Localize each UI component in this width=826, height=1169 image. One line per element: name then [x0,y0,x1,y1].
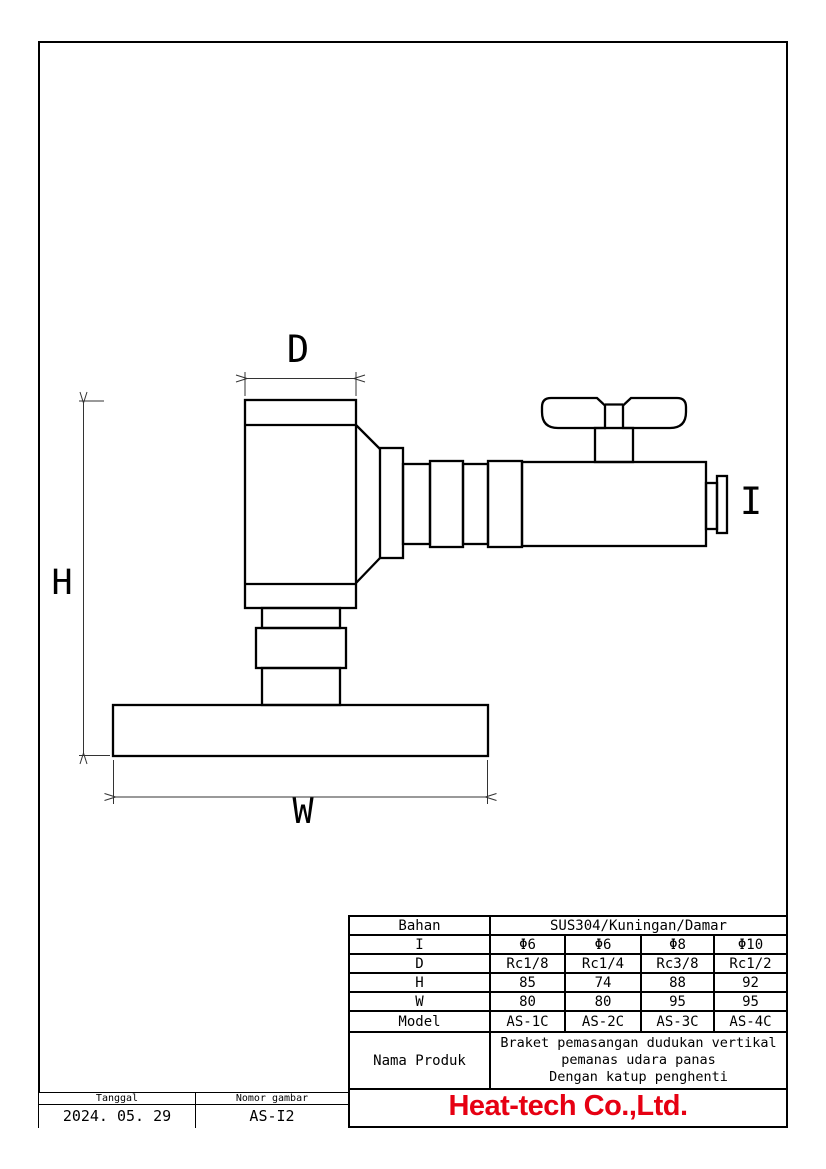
base-plate [113,705,488,756]
row-w-v1: 80 [564,993,640,1010]
wing-right [623,398,686,428]
handle-stem [595,428,633,462]
material-value: SUS304/Kuningan/Damar [489,917,786,934]
outlet-stub [706,483,717,529]
row-i-v0: Φ6 [489,936,564,953]
row-w: W 80 80 95 95 [350,991,786,1010]
row-i-label: I [350,936,489,953]
title-block-headers: Tanggal Nomor gambar [39,1093,348,1105]
row-d-v3: Rc1/2 [713,955,786,972]
row-w-v2: 95 [640,993,713,1010]
product-line-3: Dengan katup penghenti [549,1069,728,1086]
dim-label-w: W [285,795,321,830]
row-w-v3: 95 [713,993,786,1010]
wing-left [542,398,605,428]
taper-bottom [356,558,380,583]
flange [380,448,403,558]
wing-handle [542,398,686,462]
drawing-number-label: Nomor gambar [195,1093,348,1104]
row-d-v0: Rc1/8 [489,955,564,972]
date-value: 2024. 05. 29 [39,1105,195,1128]
drawing-sheet: D H W I Bahan SUS304/Kuningan/Damar I Φ6… [0,0,826,1169]
spec-table: Bahan SUS304/Kuningan/Damar I Φ6 Φ6 Φ8 Φ… [348,915,788,1128]
company-logo-text: Heat-tech Co.,Ltd. [350,1090,786,1123]
ribbed-nipple [403,461,522,547]
mounting-nut [256,628,346,668]
row-h-v2: 88 [640,974,713,991]
row-material: Bahan SUS304/Kuningan/Damar [350,917,786,934]
title-block-values: 2024. 05. 29 AS-I2 [39,1105,348,1128]
product-name-label: Nama Produk [350,1033,489,1088]
row-h-label: H [350,974,489,991]
main-body [245,400,356,608]
product-line-2: pemanas udara panas [561,1052,715,1069]
row-company: Heat-tech Co.,Ltd. [350,1088,786,1123]
neck-upper [262,608,340,628]
row-w-v0: 80 [489,993,564,1010]
neck-lower [262,668,340,705]
dim-label-h: H [44,566,80,601]
dim-h [79,401,110,756]
valve-bracket-outline [113,398,727,756]
product-name-value: Braket pemasangan dudukan vertikal peman… [489,1033,786,1088]
row-d-v2: Rc3/8 [640,955,713,972]
product-line-1: Braket pemasangan dudukan vertikal [500,1035,776,1052]
row-model-v1: AS-2C [564,1012,640,1031]
row-d-label: D [350,955,489,972]
row-h: H 85 74 88 92 [350,972,786,991]
row-i-v1: Φ6 [564,936,640,953]
row-i: I Φ6 Φ6 Φ8 Φ10 [350,934,786,953]
row-w-label: W [350,993,489,1010]
row-d: D Rc1/8 Rc1/4 Rc3/8 Rc1/2 [350,953,786,972]
row-product-name: Nama Produk Braket pemasangan dudukan ve… [350,1031,786,1088]
material-label: Bahan [350,917,489,934]
row-model-label: Model [350,1012,489,1031]
row-model: Model AS-1C AS-2C AS-3C AS-4C [350,1010,786,1031]
dimension-lines [79,372,488,804]
row-model-v0: AS-1C [489,1012,564,1031]
row-h-v3: 92 [713,974,786,991]
dim-label-d: D [282,331,314,368]
row-model-v2: AS-3C [640,1012,713,1031]
dim-label-i: I [737,483,765,520]
dim-d [245,372,356,396]
row-h-v1: 74 [564,974,640,991]
title-block: Tanggal Nomor gambar 2024. 05. 29 AS-I2 [39,1092,348,1128]
outlet-cap [717,476,727,533]
date-label: Tanggal [39,1093,195,1104]
valve-body [522,462,706,546]
drawing-number-value: AS-I2 [195,1105,348,1128]
row-model-v3: AS-4C [713,1012,786,1031]
row-i-v3: Φ10 [713,936,786,953]
row-d-v1: Rc1/4 [564,955,640,972]
row-i-v2: Φ8 [640,936,713,953]
taper-top [356,425,380,449]
row-h-v0: 85 [489,974,564,991]
